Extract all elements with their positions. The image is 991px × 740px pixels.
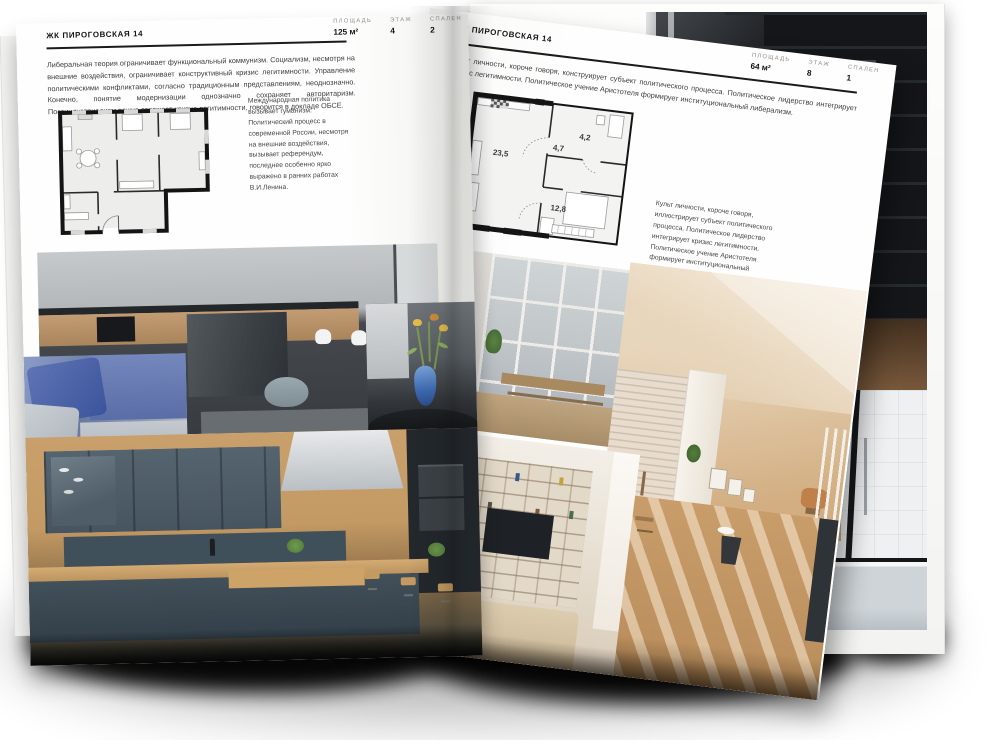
- shower-pipe: [864, 438, 867, 515]
- room-area-label: 12,8: [550, 203, 567, 214]
- leaning-frame: [727, 478, 743, 497]
- header-rule: [47, 41, 347, 49]
- metric-value: 4: [390, 26, 412, 35]
- metric-value: 1: [846, 73, 879, 86]
- window-light: [365, 303, 409, 379]
- white-chair: [315, 329, 331, 344]
- range-hood: [280, 429, 404, 491]
- metric-value: 2: [430, 25, 462, 35]
- metric-bedrooms: СПАЛЕН 1: [846, 64, 880, 86]
- gray-pouf: [264, 376, 309, 407]
- metric-value: 125 м²: [333, 27, 372, 37]
- leaf: [437, 341, 449, 349]
- blue-vase: [413, 365, 436, 405]
- room-area-label: 23,5: [492, 148, 509, 159]
- tub-rim: [826, 558, 927, 562]
- metric-floor: ЭТАЖ 8: [806, 60, 830, 81]
- wine-bottle: [209, 539, 214, 556]
- photo-wooden-kitchen: [25, 428, 482, 666]
- metric-bedrooms: СПАЛЕН 2: [430, 16, 462, 35]
- flower-stem: [428, 322, 431, 362]
- floor-plan-right: 23,5 4,7 4,2 12,8: [449, 83, 646, 254]
- orange-bloom: [430, 313, 439, 320]
- metric-floor: ЭТАЖ 4: [390, 17, 412, 35]
- metric-area: ПЛОЩАДЬ 64 м²: [750, 53, 791, 76]
- metric-value: 64 м²: [750, 62, 790, 76]
- bathtub: [826, 558, 927, 630]
- metric-label: СПАЛЕН: [430, 16, 462, 23]
- metric-label: СПАЛЕН: [847, 64, 880, 74]
- plant: [427, 542, 444, 556]
- apartment-metrics: ПЛОЩАДЬ 125 м² ЭТАЖ 4 СПАЛЕН 2: [333, 16, 462, 37]
- flower-stem: [433, 330, 441, 370]
- brochure-mockup: ЖК ПИРОГОВСКАЯ 14 ПЛОЩАДЬ 64 м² ЭТАЖ 8 С…: [0, 0, 991, 740]
- side-window: [393, 244, 441, 312]
- dishes: [59, 468, 69, 472]
- floor-plan-left: [52, 100, 217, 252]
- glass-cabinet: [51, 456, 116, 526]
- metric-area: ПЛОЩАДЬ 125 м²: [333, 18, 372, 37]
- room-area-label: 4,2: [579, 132, 592, 142]
- metric-label: ЭТАЖ: [390, 17, 412, 23]
- left-page: ЖК ПИРОГОВСКАЯ 14 ПЛОЩАДЬ 125 м² ЭТАЖ 4 …: [16, 14, 482, 666]
- metric-label: ПЛОЩАДЬ: [333, 18, 372, 25]
- entry-door-gap: [103, 228, 119, 236]
- bar-stool: [364, 571, 379, 579]
- built-in-oven: [418, 464, 464, 497]
- metric-label: ЭТАЖ: [808, 60, 831, 69]
- photo-flower-vase: [365, 302, 479, 440]
- yellow-bloom: [439, 324, 448, 331]
- page-title: ЖК ПИРОГОВСКАЯ 14: [46, 29, 143, 40]
- page-title: ЖК ПИРОГОВСКАЯ 14: [455, 23, 552, 44]
- flower-stem: [416, 327, 424, 367]
- bar-top: [228, 567, 365, 588]
- bar-stool: [401, 577, 416, 585]
- tv-screen: [482, 508, 554, 560]
- yellow-bloom: [412, 319, 421, 326]
- upper-cabinets: [44, 446, 282, 533]
- bar-stool: [437, 583, 452, 591]
- leaning-frame: [708, 467, 727, 490]
- oven: [96, 316, 135, 342]
- white-chair: [351, 330, 367, 345]
- room-area-label: 4,7: [552, 143, 565, 153]
- plan-caption: Международная политика вызывает гуманизм…: [248, 94, 354, 194]
- metric-value: 8: [806, 68, 829, 80]
- leaning-frame: [743, 488, 757, 503]
